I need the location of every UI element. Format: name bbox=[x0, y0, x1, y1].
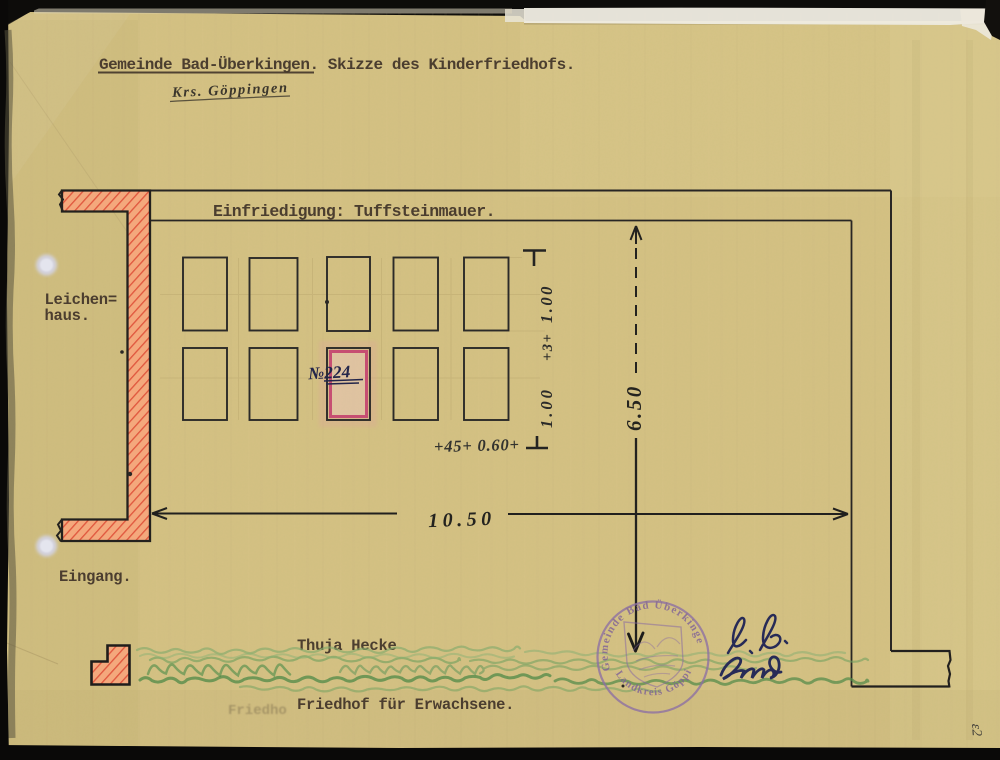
svg-text:Gemeinde Bad-Überkingen. Skizz: Gemeinde Bad-Überkingen. Skizze des Kind… bbox=[99, 55, 575, 74]
svg-text:10.50: 10.50 bbox=[428, 508, 496, 532]
svg-text:1.00: 1.00 bbox=[537, 387, 556, 428]
svg-text:Friedho: Friedho bbox=[228, 703, 287, 719]
svg-text:Eingang.: Eingang. bbox=[59, 568, 131, 586]
svg-text:+45+ 0.60+: +45+ 0.60+ bbox=[434, 435, 520, 456]
svg-text:ɛ2: ɛ2 bbox=[968, 723, 984, 737]
svg-text:6.50: 6.50 bbox=[622, 384, 646, 431]
svg-text:Friedhof für Erwachsene.: Friedhof für Erwachsene. bbox=[297, 696, 514, 714]
svg-text:1.00: 1.00 bbox=[537, 284, 556, 323]
svg-text:Einfriedigung: Tuffsteinmauer.: Einfriedigung: Tuffsteinmauer. bbox=[213, 202, 495, 221]
svg-text:haus.: haus. bbox=[45, 307, 90, 325]
svg-text:+3+: +3+ bbox=[540, 333, 556, 361]
